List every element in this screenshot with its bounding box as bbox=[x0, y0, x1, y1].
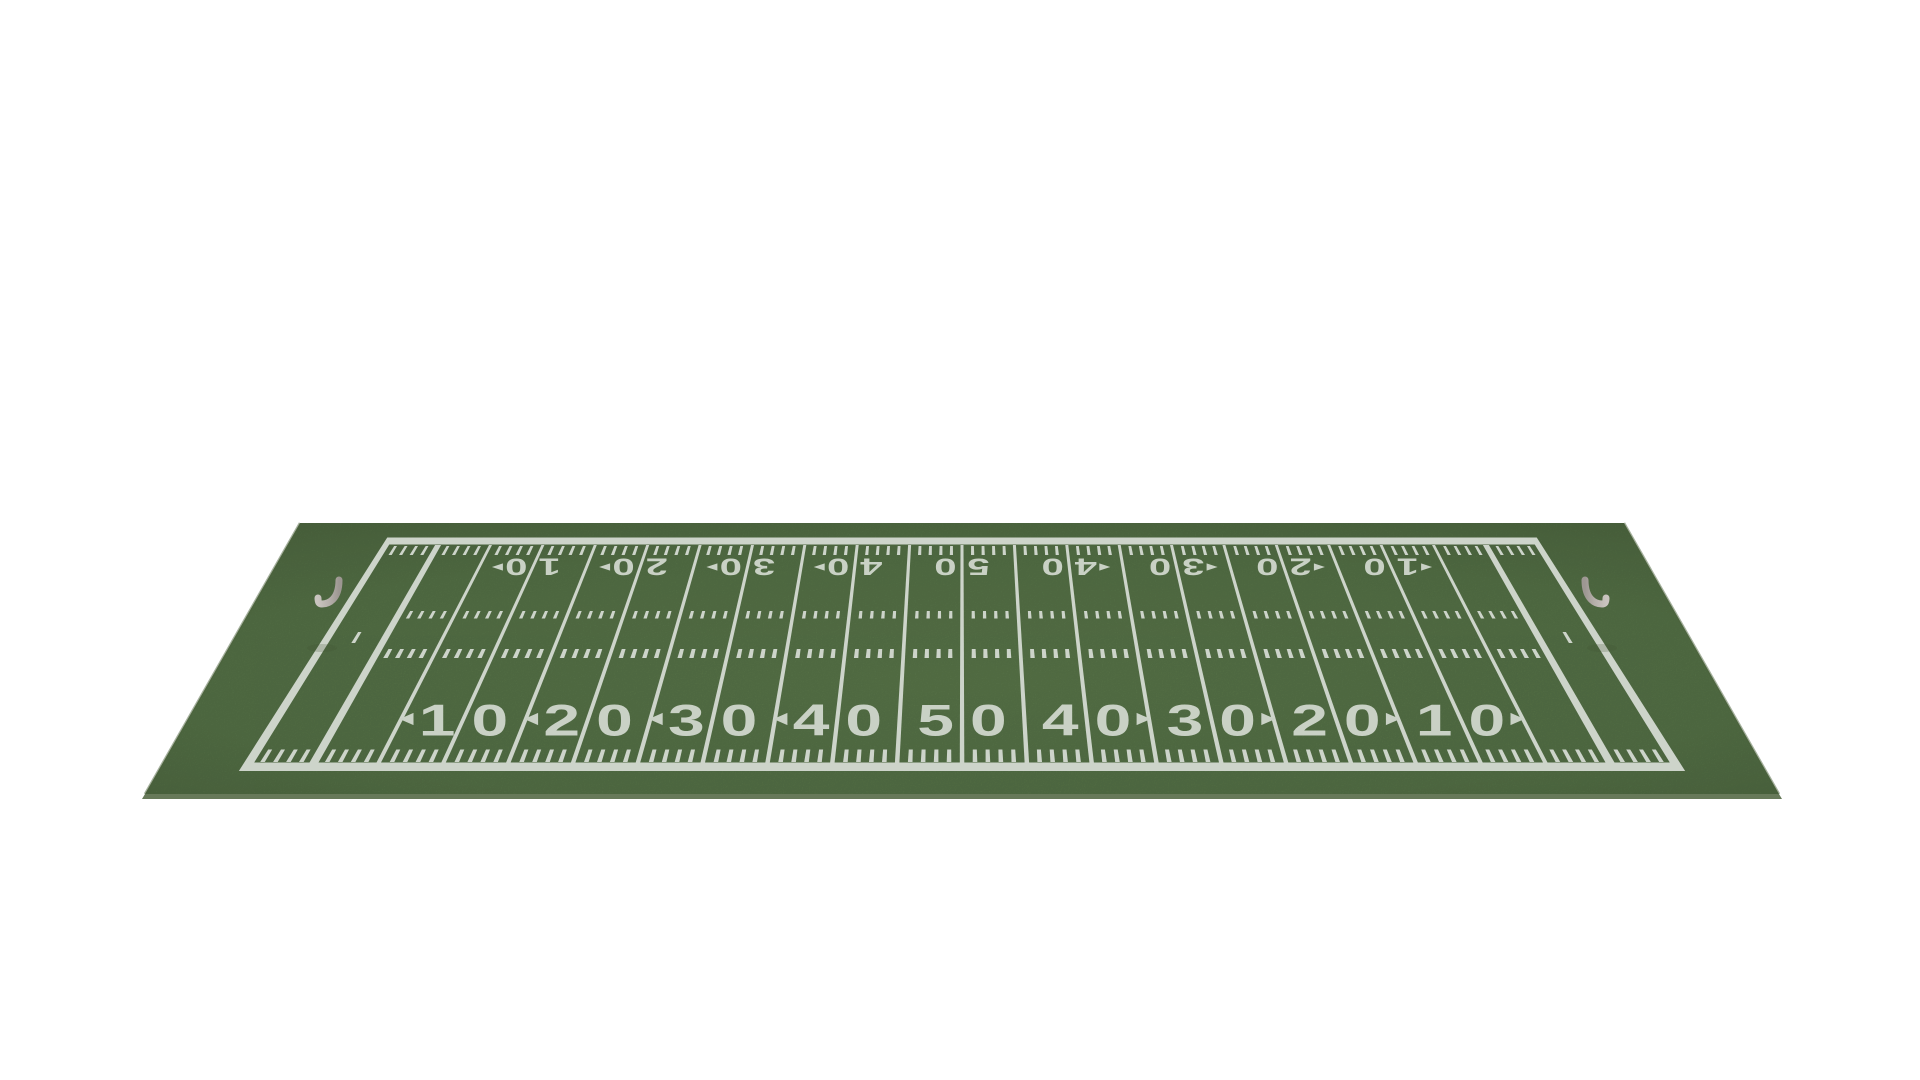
yard-number-digit: 5 bbox=[968, 553, 990, 580]
yard-number-digit: 0 bbox=[827, 553, 849, 580]
yard-number-digit: 4 bbox=[1074, 553, 1097, 580]
yard-number-digit: 0 bbox=[612, 553, 634, 580]
yard-number-digit: 2 bbox=[543, 695, 580, 745]
sideline-tick-far bbox=[992, 546, 995, 555]
hash-mark-far bbox=[938, 611, 941, 619]
sideline-tick-far bbox=[1003, 546, 1006, 555]
sideline-tick-near bbox=[973, 750, 978, 763]
yard-number-digit: 0 bbox=[1149, 553, 1171, 580]
yard-number-digit: 0 bbox=[505, 553, 527, 580]
yard-number-digit: 2 bbox=[646, 553, 668, 580]
white-background: 102030405040302010 102030405040302010 bbox=[0, 0, 1920, 1080]
yard-number-digit: 0 bbox=[934, 553, 956, 580]
hash-mark-far bbox=[983, 611, 986, 619]
yard-number-digit: 0 bbox=[1256, 553, 1278, 580]
yard-number-digit: 0 bbox=[970, 695, 1007, 745]
yard-number-digit: 3 bbox=[753, 553, 775, 580]
hash-mark-far bbox=[915, 611, 919, 619]
yard-number-digit: 0 bbox=[472, 695, 509, 745]
yard-number-digit: 1 bbox=[1397, 553, 1419, 580]
yard-number-digit: 1 bbox=[419, 695, 456, 745]
sideline-tick-near bbox=[947, 750, 952, 763]
yard-number-digit: 4 bbox=[1042, 695, 1079, 745]
yard-number-digit: 1 bbox=[1416, 695, 1453, 745]
sideline-tick-near bbox=[998, 750, 1003, 763]
hash-mark-near bbox=[936, 649, 940, 658]
hash-mark-near bbox=[983, 649, 987, 658]
yard-number-digit: 0 bbox=[1219, 695, 1256, 745]
yard-number-digit: 3 bbox=[668, 695, 705, 745]
yard-number-digit: 0 bbox=[845, 695, 882, 745]
sideline-tick-far bbox=[918, 546, 921, 555]
hash-mark-far bbox=[972, 611, 975, 619]
yard-number-digit: 4 bbox=[859, 553, 882, 580]
hash-mark-near bbox=[972, 649, 976, 658]
hash-mark-near bbox=[948, 649, 952, 658]
sideline-tick-far bbox=[929, 546, 932, 555]
hash-mark-near bbox=[925, 649, 929, 658]
sideline-tick-near bbox=[921, 750, 926, 763]
yard-number-digit: 3 bbox=[1182, 553, 1204, 580]
hash-mark-far bbox=[994, 611, 997, 619]
sideline-tick-near bbox=[986, 750, 991, 763]
yard-number-digit: 0 bbox=[1095, 695, 1132, 745]
yard-number-digit: 3 bbox=[1167, 695, 1204, 745]
yard-number-digit: 2 bbox=[1289, 553, 1311, 580]
hash-mark-near bbox=[995, 649, 999, 658]
yard-number-digit: 2 bbox=[1291, 695, 1328, 745]
yard-number-digit: 0 bbox=[1344, 695, 1381, 745]
hash-mark-near bbox=[913, 649, 918, 658]
hash-mark-far bbox=[949, 611, 952, 619]
yard-number-digit: 1 bbox=[538, 553, 560, 580]
yard-number-digit: 0 bbox=[1042, 553, 1064, 580]
yard-number-digit: 0 bbox=[721, 695, 758, 745]
yard-number-digit: 4 bbox=[793, 695, 830, 745]
sideline-tick-near bbox=[934, 750, 939, 763]
yard-number-digit: 0 bbox=[1469, 695, 1506, 745]
turf-front-bevel bbox=[142, 794, 1782, 799]
football-field-render: 102030405040302010 102030405040302010 bbox=[0, 0, 1920, 1080]
hash-mark-near bbox=[1007, 649, 1012, 658]
yard-number-digit: 0 bbox=[720, 553, 742, 580]
hash-mark-far bbox=[1005, 611, 1009, 619]
hash-mark-far bbox=[926, 611, 929, 619]
yard-number-digit: 0 bbox=[596, 695, 633, 745]
yard-number-digit: 5 bbox=[917, 695, 954, 745]
yard-number-digit: 0 bbox=[1363, 553, 1385, 580]
